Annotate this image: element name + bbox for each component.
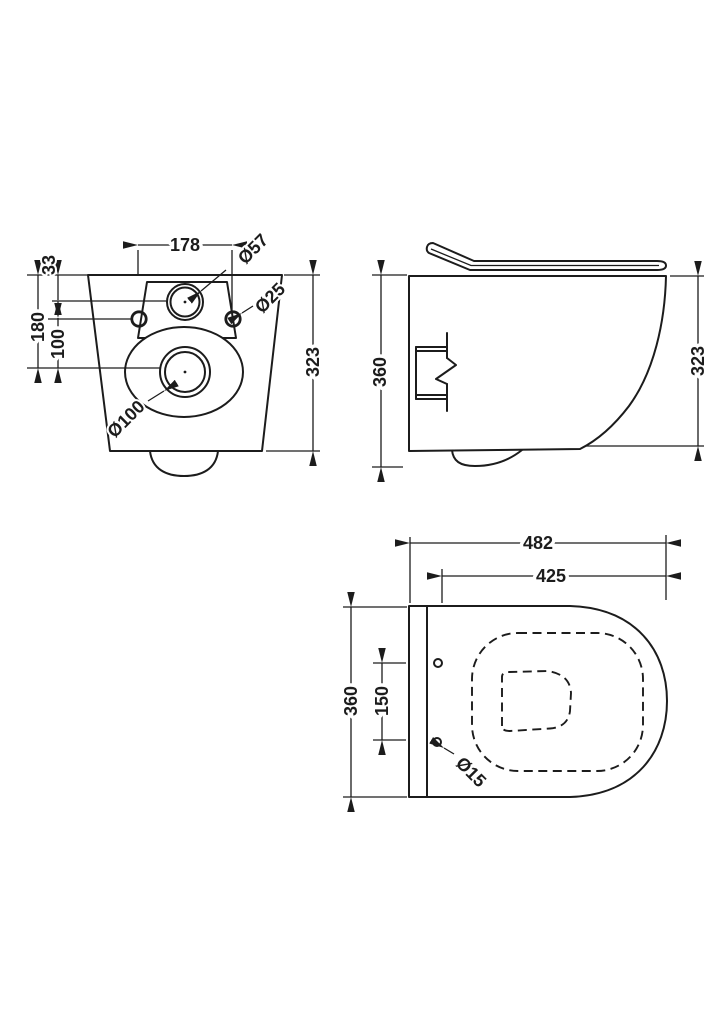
side-view: 360 323 bbox=[370, 243, 708, 467]
dim-label-hole-spacing: 178 bbox=[170, 235, 200, 255]
dim-label-side-total-height: 360 bbox=[370, 357, 390, 387]
dim-label-top-to-inlet: 33 bbox=[39, 255, 59, 275]
rear-fixing-hole-right-dot bbox=[232, 318, 234, 320]
side-outlet-bump bbox=[452, 450, 522, 466]
dim-label-seat-hole-spacing: 150 bbox=[372, 686, 392, 716]
dim-label-top-to-outlet: 180 bbox=[28, 312, 48, 342]
rear-outlet-bump bbox=[150, 451, 218, 476]
dim-label-side-height: 323 bbox=[688, 346, 708, 376]
technical-drawing: 178 33 180 100 323 Ø57 Ø25 Ø100 bbox=[0, 0, 724, 1024]
plan-body-outline bbox=[409, 606, 667, 797]
dim-label-total-depth: 482 bbox=[523, 533, 553, 553]
dim-label-plan-width: 360 bbox=[341, 686, 361, 716]
dim-label-holes-to-outlet: 100 bbox=[48, 329, 68, 359]
rear-outlet-center-dot bbox=[184, 371, 187, 374]
side-body-outline bbox=[409, 276, 666, 451]
rear-inlet-center-dot bbox=[184, 301, 187, 304]
dim-label-bowl-depth: 425 bbox=[536, 566, 566, 586]
drawing-page: 178 33 180 100 323 Ø57 Ø25 Ø100 bbox=[0, 0, 724, 1024]
plan-view: 482 425 360 150 Ø15 bbox=[341, 533, 667, 797]
dim-label-inlet-dia: Ø57 bbox=[234, 230, 272, 268]
dim-label-rear-height: 323 bbox=[303, 347, 323, 377]
rear-view: 178 33 180 100 323 Ø57 Ø25 Ø100 bbox=[27, 230, 323, 476]
